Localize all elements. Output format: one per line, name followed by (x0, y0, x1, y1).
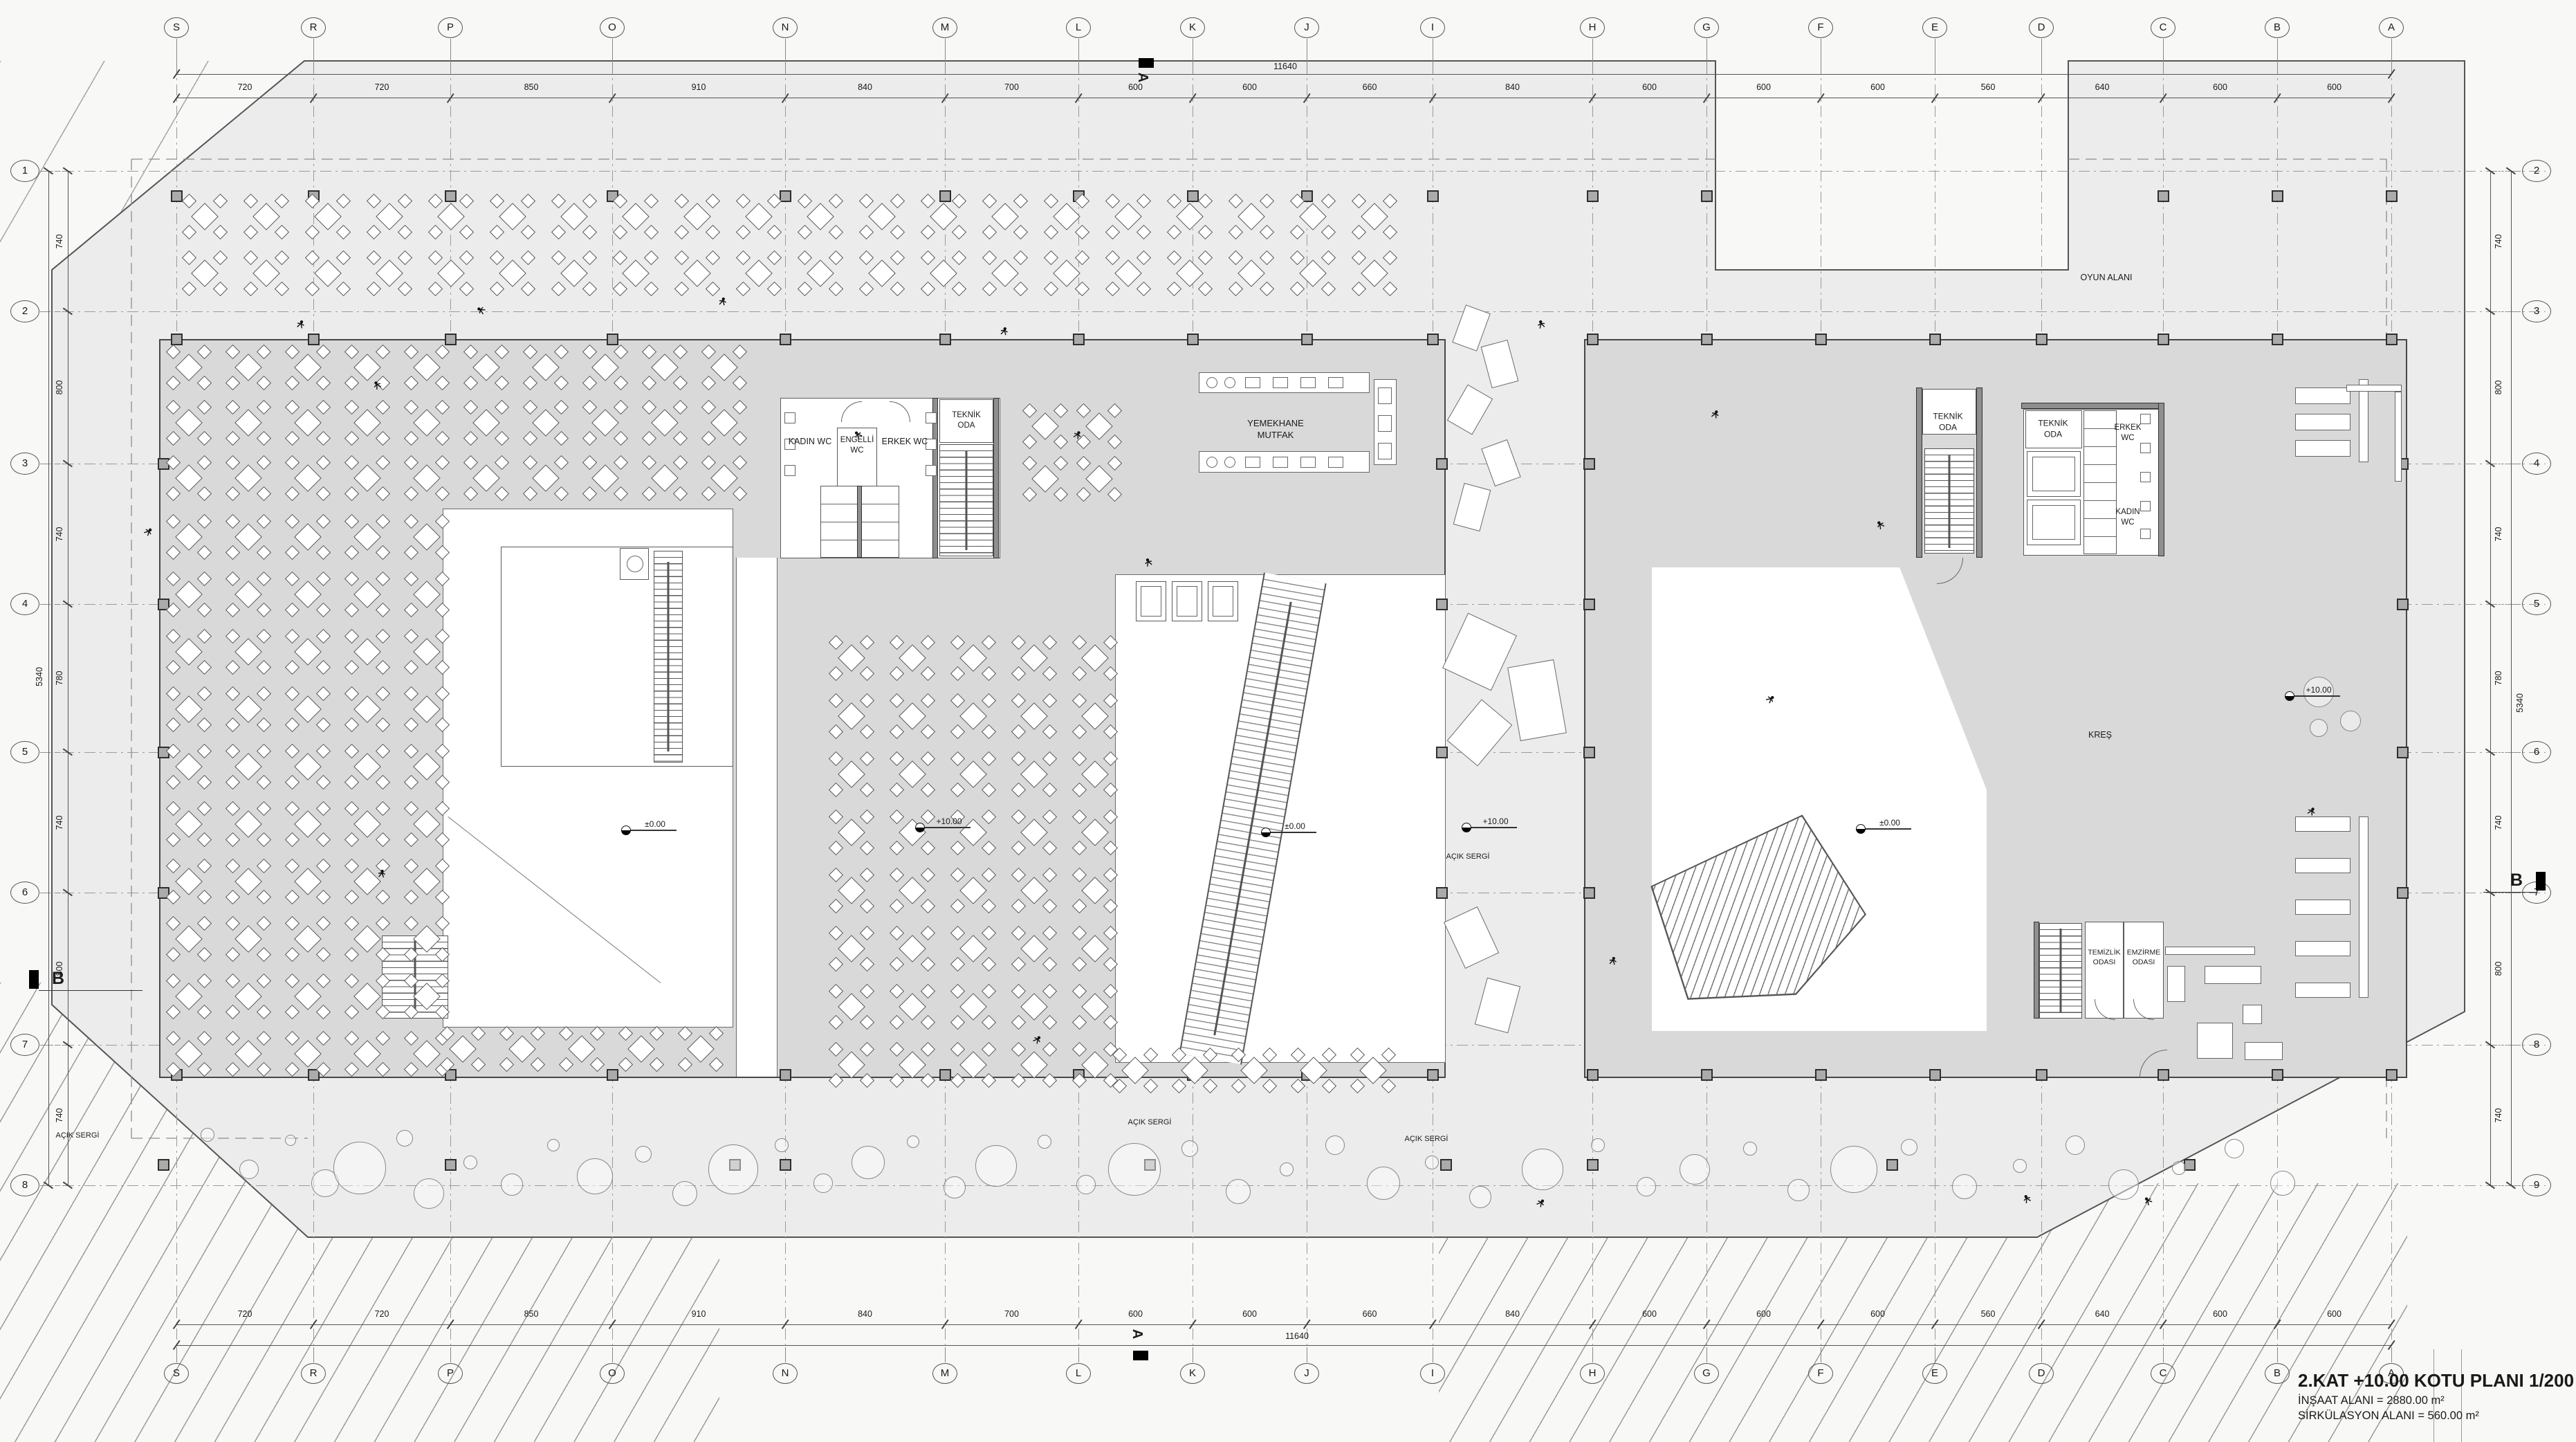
tree-planter (1038, 1135, 1051, 1149)
table-chair-diamond (613, 225, 627, 239)
structural-column (2386, 1069, 2398, 1081)
table-chair-diamond (226, 890, 240, 904)
table-cluster (243, 194, 288, 238)
structural-column (445, 1159, 457, 1171)
table-chair-diamond (767, 282, 782, 296)
table-chair-diamond (890, 957, 904, 971)
table-chair-diamond (582, 431, 597, 446)
table-cluster (344, 859, 389, 903)
table-cluster (166, 974, 210, 1018)
structural-column (308, 334, 320, 345)
table-chair-diamond (376, 890, 390, 904)
table-chair-diamond (294, 409, 322, 437)
table-chair-diamond (798, 225, 812, 239)
table-chair-diamond (499, 1026, 514, 1041)
dimension-label: 600 (1642, 1309, 1657, 1319)
table-chair-diamond (472, 409, 500, 437)
structural-column (1440, 1159, 1452, 1171)
table-chair-diamond (582, 225, 597, 239)
fixture (2295, 941, 2350, 956)
table-chair-diamond (344, 629, 359, 644)
grid-bubble-top-F: F (1808, 17, 1833, 38)
table-cluster (582, 345, 627, 389)
fixture (1273, 377, 1288, 388)
table-chair-diamond (499, 203, 526, 230)
fixture (2359, 816, 2368, 998)
grid-bubble-bottom-P: P (438, 1363, 463, 1384)
table-chair-diamond (890, 1042, 904, 1057)
tree-planter (907, 1135, 919, 1148)
table-chair-diamond (353, 695, 381, 723)
table-chair-diamond (305, 225, 320, 239)
table-chair-diamond (435, 376, 450, 390)
table-chair-diamond (226, 1031, 240, 1046)
table-chair-diamond (316, 486, 331, 501)
table-chair-diamond (449, 1035, 477, 1063)
table-chair-diamond (404, 572, 418, 586)
dimension-label: 660 (1363, 1309, 1377, 1319)
tree-planter (1637, 1177, 1656, 1196)
structural-column (1436, 458, 1448, 470)
dimension-label: 640 (2095, 1309, 2110, 1319)
table-chair-diamond (618, 1026, 633, 1041)
table-chair-diamond (1260, 194, 1274, 208)
table-chair-diamond (344, 345, 359, 359)
table-chair-diamond (710, 464, 738, 492)
dimension-label: 600 (1870, 1309, 1885, 1319)
structural-column (1886, 1159, 1898, 1171)
table-chair-diamond (197, 947, 212, 962)
table-chair-diamond (1031, 465, 1059, 493)
table-chair-diamond (829, 250, 843, 265)
table-chair-diamond (952, 250, 966, 265)
table-cluster (1229, 250, 1273, 295)
table-cluster (1072, 635, 1116, 679)
table-chair-diamond (860, 899, 874, 913)
table-chair-diamond (197, 744, 212, 758)
fixture (1273, 457, 1288, 468)
grid-bubble-bottom-B: B (2265, 1363, 2290, 1384)
table-cluster (890, 1042, 934, 1086)
table-chair-diamond (404, 514, 418, 529)
grid-bubble-left-6: 6 (10, 882, 39, 904)
table-chair-diamond (687, 1035, 715, 1063)
tree-planter (1226, 1179, 1251, 1204)
fixture (1245, 457, 1260, 468)
table-chair-diamond (490, 225, 504, 239)
table-cluster (285, 744, 329, 788)
table-chair-diamond (367, 194, 381, 208)
table-cluster (1011, 1042, 1056, 1086)
table-chair-diamond (197, 486, 212, 501)
grid-leader (1592, 39, 1593, 73)
table-chair-diamond (1072, 1042, 1087, 1057)
table-chair-diamond (683, 259, 711, 287)
table-chair-diamond (1290, 225, 1305, 239)
table-cluster (1072, 693, 1116, 738)
table-chair-diamond (1042, 1015, 1057, 1030)
table-chair-diamond (554, 400, 569, 414)
table-chair-diamond (622, 259, 650, 287)
table-cluster (463, 400, 508, 444)
dimension-label: 640 (2095, 82, 2110, 92)
table-cluster (1072, 1042, 1116, 1086)
dimension-label: 720 (375, 82, 389, 92)
table-cluster (559, 1026, 603, 1070)
table-chair-diamond (1240, 1057, 1268, 1084)
section-marker-label: B (2510, 869, 2523, 892)
table-cluster (404, 859, 448, 903)
room-label: AÇIK SERGİ (1128, 1117, 1172, 1127)
table-chair-diamond (1231, 1079, 1246, 1093)
table-chair-diamond (1321, 194, 1336, 208)
structural-column (939, 334, 951, 345)
structural-column (1073, 334, 1085, 345)
table-chair-diamond (435, 947, 450, 962)
table-chair-diamond (316, 1005, 331, 1019)
table-chair-diamond (890, 666, 904, 681)
table-chair-diamond (1076, 487, 1091, 502)
table-chair-diamond (435, 859, 450, 873)
table-chair-diamond (463, 376, 478, 390)
dimension-line (176, 74, 2391, 75)
table-chair-diamond (413, 523, 441, 551)
table-chair-diamond (226, 603, 240, 617)
table-chair-diamond (860, 810, 874, 824)
person-figure (1873, 517, 1888, 532)
dimension-label: 720 (238, 82, 252, 92)
table-chair-diamond (316, 1031, 331, 1046)
person-icon (294, 317, 309, 331)
table-chair-diamond (175, 810, 203, 838)
table-chair-diamond (890, 810, 904, 824)
table-chair-diamond (435, 545, 450, 560)
table-chair-diamond (398, 225, 412, 239)
table-cluster (890, 693, 934, 738)
table-cluster (344, 686, 389, 731)
structural-column (1583, 887, 1595, 899)
table-cluster (226, 859, 270, 903)
table-chair-diamond (1042, 1073, 1057, 1088)
table-cluster (367, 250, 411, 295)
tree-planter (2225, 1139, 2244, 1158)
table-chair-diamond (1042, 810, 1057, 824)
grid-leader (1592, 1347, 1593, 1362)
table-chair-diamond (1103, 724, 1118, 739)
tree-planter (813, 1174, 833, 1193)
tree-planter (2066, 1135, 2085, 1155)
table-chair-diamond (234, 464, 262, 492)
structural-column (2272, 1069, 2283, 1081)
table-chair-diamond (1105, 225, 1120, 239)
table-cluster (344, 400, 389, 444)
grid-bubble-top-D: D (2029, 17, 2054, 38)
grid-leader (612, 1347, 613, 1362)
table-cluster (523, 455, 567, 500)
table-chair-diamond (353, 925, 381, 953)
table-chair-diamond (1137, 194, 1151, 208)
court-bench (1481, 340, 1519, 388)
fixture (2359, 379, 2368, 462)
grid-bubble-bottom-K: K (1180, 1363, 1205, 1384)
table-chair-diamond (316, 660, 331, 675)
table-cluster (285, 686, 329, 731)
table-chair-diamond (613, 194, 627, 208)
fixture-circle (1206, 457, 1217, 468)
table-chair-diamond (499, 1057, 514, 1072)
table-chair-diamond (982, 693, 996, 708)
table-chair-diamond (521, 225, 535, 239)
table-chair-diamond (706, 282, 720, 296)
grid-bubble-left-3: 3 (10, 453, 39, 475)
table-chair-diamond (344, 660, 359, 675)
table-chair-diamond (950, 1073, 965, 1088)
structural-column (1436, 887, 1448, 899)
table-chair-diamond (709, 1026, 724, 1041)
grid-leader (1821, 39, 1821, 73)
table-chair-diamond (285, 775, 300, 790)
table-chair-diamond (591, 464, 619, 492)
table-chair-diamond (899, 993, 926, 1021)
table-chair-diamond (404, 775, 418, 790)
tree-planter (975, 1145, 1017, 1187)
structural-column (2386, 190, 2398, 202)
table-chair-diamond (316, 947, 331, 962)
table-chair-diamond (1321, 225, 1336, 239)
table-chair-diamond (1103, 1015, 1118, 1030)
table-chair-diamond (651, 409, 679, 437)
table-chair-diamond (472, 464, 500, 492)
table-chair-diamond (674, 225, 689, 239)
table-chair-diamond (1112, 1048, 1127, 1062)
table-chair-diamond (1072, 899, 1087, 913)
table-cluster (226, 744, 270, 788)
table-chair-diamond (551, 250, 566, 265)
table-chair-diamond (344, 431, 359, 446)
table-chair-diamond (316, 775, 331, 790)
dimension-label: 720 (238, 1309, 252, 1319)
table-chair-diamond (435, 890, 450, 904)
fixture-circle (1224, 457, 1235, 468)
structural-column (2158, 334, 2169, 345)
table-chair-diamond (234, 523, 262, 551)
section-marker-label: A (1128, 1329, 1146, 1339)
table-chair-diamond (495, 431, 509, 446)
table-chair-diamond (234, 925, 262, 953)
fixture (2140, 472, 2151, 482)
table-cluster (367, 194, 411, 238)
table-cluster (166, 916, 210, 960)
table-chair-diamond (234, 581, 262, 608)
table-chair-diamond (838, 819, 865, 846)
table-chair-diamond (1072, 1015, 1087, 1030)
table-chair-diamond (316, 974, 331, 988)
table-chair-diamond (1072, 666, 1087, 681)
table-chair-diamond (921, 194, 935, 208)
table-chair-diamond (353, 409, 381, 437)
table-chair-diamond (1020, 644, 1048, 672)
table-chair-diamond (1107, 456, 1122, 471)
grid-leader (1193, 39, 1193, 73)
table-chair-diamond (982, 1015, 996, 1030)
table-chair-diamond (950, 926, 965, 940)
table-chair-diamond (582, 376, 597, 390)
table-chair-diamond (644, 194, 659, 208)
table-chair-diamond (1011, 810, 1026, 824)
table-chair-diamond (591, 409, 619, 437)
grid-leader (40, 311, 68, 312)
table-chair-diamond (413, 581, 441, 608)
table-cluster (404, 514, 448, 558)
grid-bubble-left-7: 7 (10, 1034, 39, 1056)
table-chair-diamond (353, 523, 381, 551)
grid-leader (2492, 464, 2521, 464)
table-chair-diamond (890, 225, 905, 239)
table-cluster (829, 984, 873, 1028)
table-chair-diamond (899, 760, 926, 788)
table-chair-diamond (294, 523, 322, 551)
table-chair-diamond (316, 514, 331, 529)
table-cluster (1044, 194, 1088, 238)
table-cluster (440, 1026, 484, 1070)
table-chair-diamond (316, 455, 331, 470)
table-chair-diamond (275, 282, 289, 296)
table-chair-diamond (1081, 877, 1109, 904)
table-chair-diamond (921, 225, 935, 239)
table-chair-diamond (435, 660, 450, 675)
table-chair-diamond (435, 603, 450, 617)
fixture-circle (1206, 377, 1217, 388)
table-chair-diamond (701, 486, 716, 501)
table-chair-diamond (243, 250, 258, 265)
table-chair-diamond (1231, 1048, 1246, 1062)
table-chair-diamond (829, 194, 843, 208)
person-figure (1534, 1195, 1549, 1211)
tree-planter (775, 1138, 789, 1152)
table-chair-diamond (860, 957, 874, 971)
table-chair-diamond (398, 282, 412, 296)
table-chair-diamond (950, 957, 965, 971)
tree-planter (1522, 1149, 1563, 1190)
table-chair-diamond (376, 203, 403, 230)
table-chair-diamond (257, 916, 271, 931)
table-chair-diamond (860, 635, 874, 650)
structural-column (1427, 190, 1439, 202)
table-chair-diamond (344, 744, 359, 758)
table-chair-diamond (890, 693, 904, 708)
table-cluster (285, 514, 329, 558)
table-cluster (285, 1031, 329, 1075)
table-chair-diamond (197, 400, 212, 414)
table-chair-diamond (1112, 1079, 1127, 1093)
table-chair-diamond (166, 455, 181, 470)
table-chair-diamond (234, 810, 262, 838)
table-chair-diamond (1143, 1079, 1158, 1093)
table-chair-diamond (285, 1005, 300, 1019)
table-chair-diamond (860, 666, 874, 681)
table-chair-diamond (673, 486, 688, 501)
tree-planter (944, 1176, 966, 1198)
table-chair-diamond (523, 431, 537, 446)
table-chair-diamond (950, 868, 965, 882)
table-chair-diamond (376, 259, 403, 287)
table-cluster (1290, 194, 1334, 238)
table-cluster (285, 400, 329, 444)
table-chair-diamond (463, 486, 478, 501)
table-chair-diamond (1072, 868, 1087, 882)
table-chair-diamond (1053, 203, 1080, 230)
table-chair-diamond (471, 1026, 486, 1041)
table-chair-diamond (899, 702, 926, 730)
table-chair-diamond (166, 400, 181, 414)
table-chair-diamond (440, 1026, 454, 1041)
tree-planter (1469, 1186, 1491, 1208)
table-chair-diamond (982, 194, 997, 208)
table-cluster (243, 250, 288, 295)
tree-planter (1830, 1146, 1877, 1193)
table-chair-diamond (413, 983, 441, 1010)
table-chair-diamond (316, 1062, 331, 1077)
table-chair-diamond (1359, 1057, 1387, 1084)
table-chair-diamond (294, 925, 322, 953)
table-chair-diamond (921, 1015, 935, 1030)
table-chair-diamond (1081, 1051, 1109, 1079)
table-chair-diamond (367, 225, 381, 239)
table-chair-diamond (166, 686, 181, 701)
tree-planter (1743, 1142, 1757, 1156)
table-chair-diamond (243, 225, 258, 239)
table-chair-diamond (197, 775, 212, 790)
table-chair-diamond (1081, 702, 1109, 730)
table-chair-diamond (673, 400, 688, 414)
table-chair-diamond (807, 259, 834, 287)
structural-column (1583, 747, 1595, 758)
table-cluster (166, 629, 210, 673)
person-icon (141, 524, 157, 540)
table-chair-diamond (344, 947, 359, 962)
table-chair-diamond (353, 983, 381, 1010)
table-chair-diamond (614, 376, 628, 390)
table-chair-diamond (166, 916, 181, 931)
grid-bubble-top-G: G (1694, 17, 1719, 38)
grid-leader (313, 39, 314, 73)
table-chair-diamond (642, 486, 656, 501)
table-chair-diamond (257, 859, 271, 873)
table-chair-diamond (376, 775, 390, 790)
table-chair-diamond (344, 832, 359, 847)
grid-leader (1433, 1347, 1433, 1362)
structural-column (1587, 190, 1599, 202)
table-chair-diamond (959, 935, 987, 962)
dimension-label: 780 (55, 671, 64, 686)
table-chair-diamond (982, 926, 996, 940)
table-chair-diamond (890, 724, 904, 739)
grid-bubble-bottom-J: J (1294, 1363, 1319, 1384)
table-cluster (285, 916, 329, 960)
grid-bubble-right-4: 4 (2522, 453, 2551, 475)
table-chair-diamond (367, 282, 381, 296)
fixture (2295, 900, 2350, 915)
table-chair-diamond (285, 890, 300, 904)
table-chair-diamond (959, 877, 987, 904)
table-chair-diamond (642, 431, 656, 446)
table-chair-diamond (613, 250, 627, 265)
table-chair-diamond (294, 695, 322, 723)
table-chair-diamond (829, 1015, 843, 1030)
table-chair-diamond (463, 455, 478, 470)
grid-bubble-bottom-O: O (600, 1363, 625, 1384)
table-chair-diamond (285, 514, 300, 529)
